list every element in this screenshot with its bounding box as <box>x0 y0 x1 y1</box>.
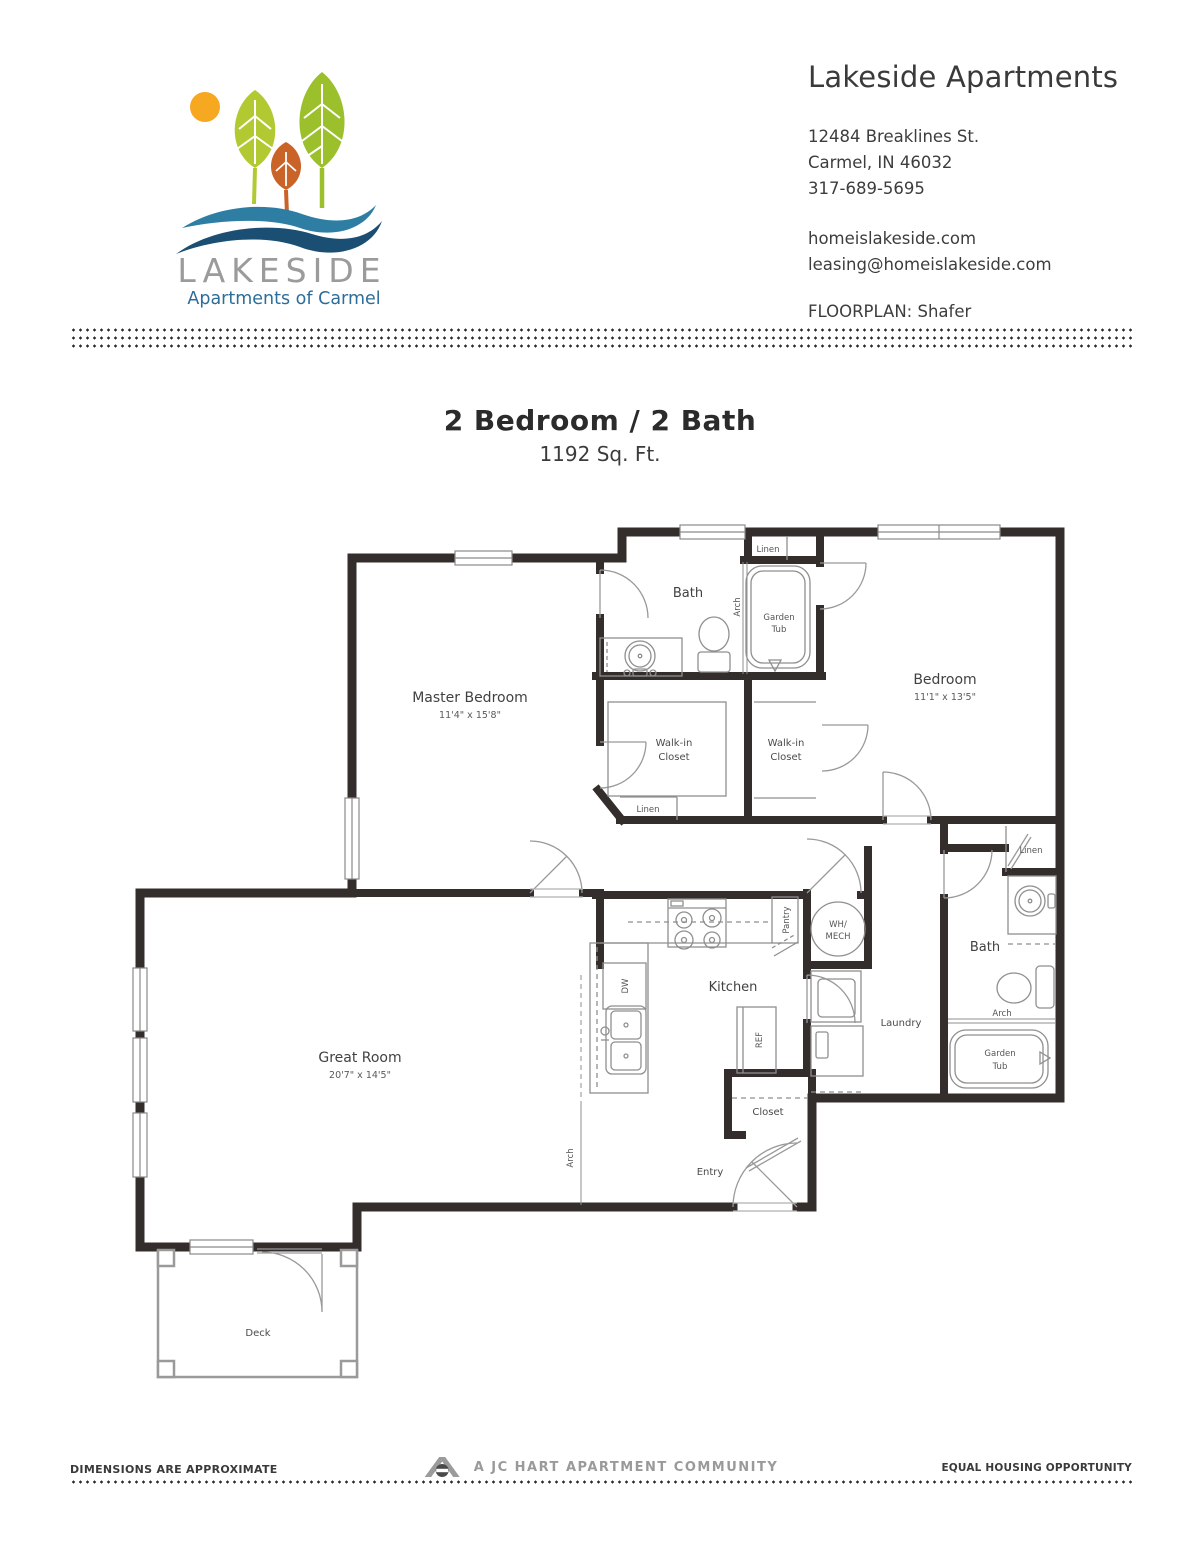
door-entry <box>733 1143 797 1207</box>
bath-main-vanity <box>600 638 682 676</box>
window-bedroom-top <box>878 525 1000 539</box>
garden-tub-second <box>950 1030 1050 1088</box>
label-great-room-dims: 20'7" x 14'5" <box>329 1070 391 1081</box>
arch-divider-second <box>948 1019 1056 1023</box>
door-wh-mech <box>807 839 861 893</box>
window-master-top <box>455 551 512 565</box>
label-whmech-b: MECH <box>825 932 850 942</box>
label-garden-tub-2a: Garden <box>984 1049 1015 1059</box>
label-arch-great: Arch <box>566 1148 576 1167</box>
equal-housing-note: EQUAL HOUSING OPPORTUNITY <box>941 1462 1132 1474</box>
window-greatroom-3 <box>133 1113 147 1177</box>
door-deck-slider <box>257 1249 322 1312</box>
label-deck: Deck <box>245 1328 270 1339</box>
deck-structure <box>158 1250 357 1377</box>
label-walkin-2a: Walk-in <box>768 738 805 749</box>
jchart-house-icon <box>424 1448 464 1478</box>
door-bedroom-closet <box>820 563 866 609</box>
label-garden-tub-2b: Tub <box>992 1062 1008 1072</box>
label-whmech-a: WH/ <box>829 920 847 930</box>
label-bedroom-dims: 11'1" x 13'5" <box>914 692 976 703</box>
jchart-community-text: A JC HART APARTMENT COMMUNITY <box>474 1460 779 1478</box>
label-bedroom: Bedroom <box>913 672 976 688</box>
label-linen-mid: Linen <box>636 805 659 815</box>
interior-walls <box>352 532 1060 1135</box>
bath-second-vanity <box>1008 876 1056 944</box>
label-linen-top: Linen <box>756 545 779 555</box>
label-arch-second: Arch <box>992 1009 1011 1019</box>
room-labels: Master Bedroom 11'4" x 15'8" Bedroom 11'… <box>245 545 1042 1339</box>
window-bath-top <box>680 525 745 539</box>
label-master-bedroom: Master Bedroom <box>412 690 528 706</box>
door-master-bedroom <box>530 841 582 893</box>
window-greatroom-1 <box>133 968 147 1031</box>
footer-divider <box>70 1479 1132 1485</box>
label-walkin-1a: Walk-in <box>656 738 693 749</box>
toilet-second <box>997 966 1054 1008</box>
closet2-shelving <box>754 702 816 798</box>
window-master-left <box>345 798 359 879</box>
label-closet: Closet <box>752 1107 783 1118</box>
label-dw: DW <box>621 978 631 994</box>
door-bedroom <box>883 772 931 820</box>
label-garden-tub-1b: Tub <box>771 625 787 635</box>
jchart-brand: A JC HART APARTMENT COMMUNITY <box>424 1448 779 1478</box>
footer: DIMENSIONS ARE APPROXIMATE A JC HART APA… <box>70 1446 1132 1478</box>
stove <box>668 899 726 949</box>
label-entry: Entry <box>697 1167 724 1178</box>
label-bath-main: Bath <box>673 586 703 601</box>
label-walkin-2b: Closet <box>770 752 801 763</box>
closet1-shelving <box>608 702 726 796</box>
label-great-room: Great Room <box>318 1050 401 1066</box>
label-kitchen: Kitchen <box>709 980 758 995</box>
label-laundry: Laundry <box>881 1018 922 1029</box>
label-arch-main: Arch <box>733 597 743 616</box>
label-pantry: Pantry <box>782 906 792 933</box>
washer <box>811 971 861 1022</box>
flyer-page: LAKESIDE Apartments of Carmel Lakeside A… <box>0 0 1200 1553</box>
door-laundry <box>807 975 855 1023</box>
label-linen-right: Linen <box>1019 846 1042 856</box>
kitchen-sink <box>601 1006 646 1074</box>
dimensions-note: DIMENSIONS ARE APPROXIMATE <box>70 1463 278 1476</box>
door-walkin-closet-2 <box>822 725 868 771</box>
label-master-bedroom-dims: 11'4" x 15'8" <box>439 710 501 721</box>
window-greatroom-2 <box>133 1038 147 1102</box>
label-ref: REF <box>755 1032 765 1048</box>
label-garden-tub-1a: Garden <box>763 613 794 623</box>
window-greatroom-bottom <box>190 1240 253 1254</box>
door-bath-main <box>600 570 648 618</box>
label-walkin-1b: Closet <box>658 752 689 763</box>
toilet-main <box>698 617 730 672</box>
floorplan-drawing: Master Bedroom 11'4" x 15'8" Bedroom 11'… <box>0 0 1200 1553</box>
door-walkin-closet-1 <box>600 742 646 788</box>
label-bath-second: Bath <box>970 940 1000 955</box>
dryer <box>811 1026 863 1076</box>
door-bath-second <box>944 850 992 898</box>
